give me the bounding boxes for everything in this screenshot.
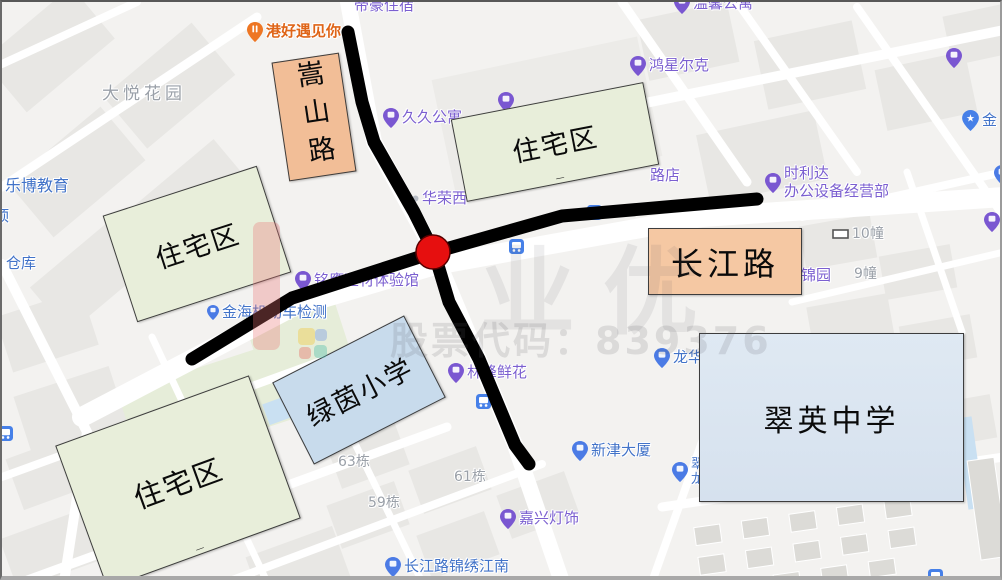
map-slide: 大悦花园港好遇见你帝豪住宿温馨公寓久久公寓鸿星尔克时利达 办公设备经营部华荣西路… [0,0,1002,580]
changjiang-road-line [192,199,757,359]
intersection-marker [416,235,450,269]
road-annotation-layer [2,2,1002,580]
